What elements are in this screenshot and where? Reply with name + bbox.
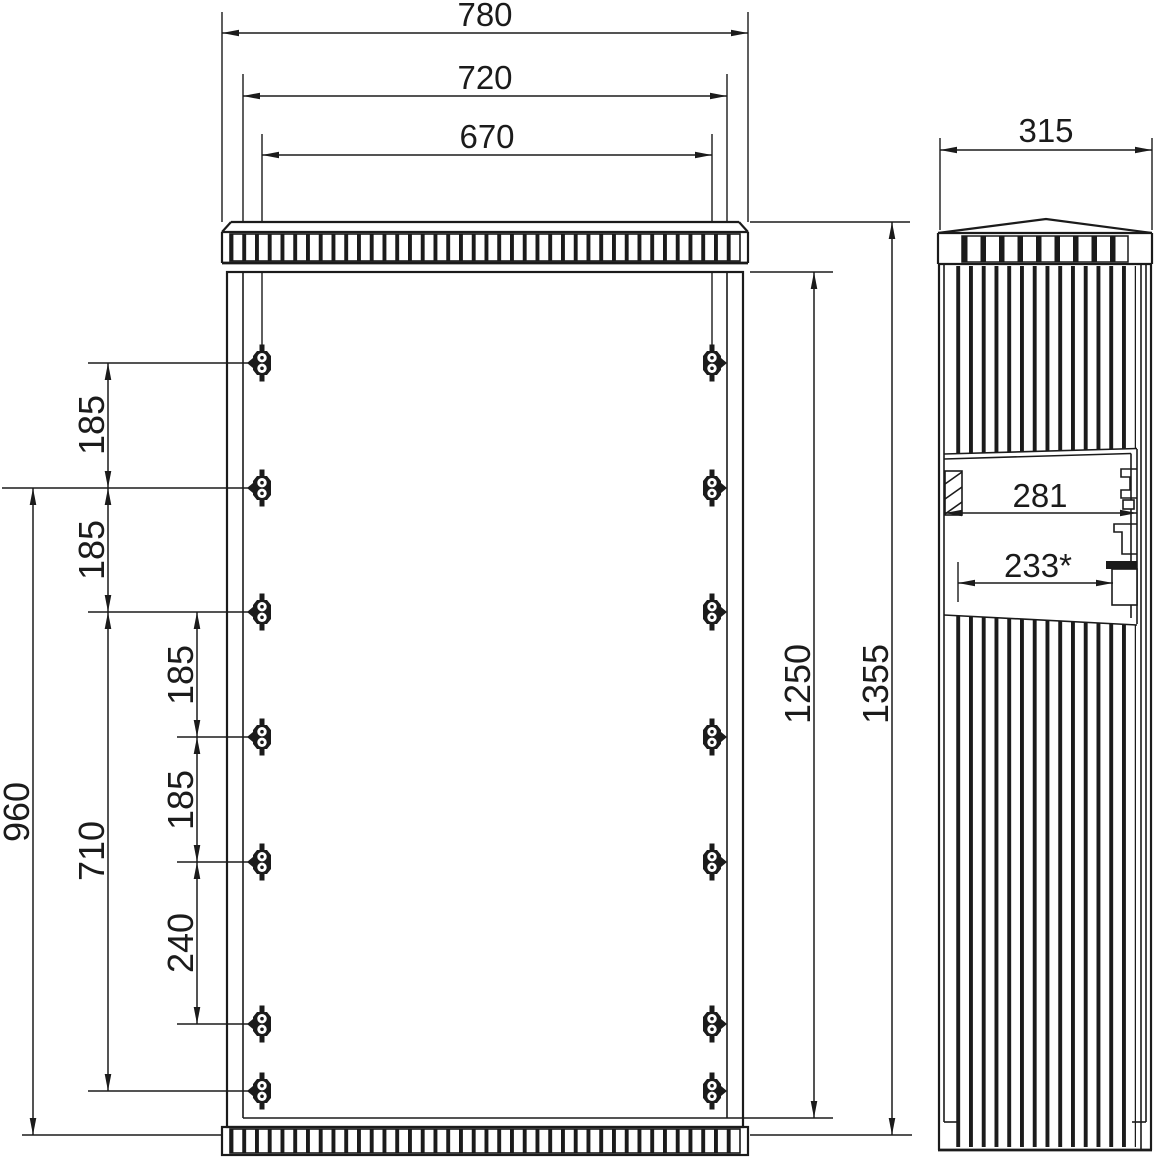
dim-label-1250: 1250 [777, 644, 818, 724]
dim-spacing-240: 240 [160, 862, 201, 1024]
dim-label-1355: 1355 [855, 644, 896, 724]
dim-label-185-2: 185 [71, 520, 112, 580]
dim-inner-281: 281 [945, 477, 1137, 514]
dim-label-281: 281 [1012, 477, 1067, 514]
dim-height-1355: 1355 [855, 222, 896, 1135]
side-roof-cap [938, 219, 1152, 264]
side-rib-panels [944, 266, 1137, 1147]
dim-label-780: 780 [457, 0, 512, 33]
dim-label-233: 233* [1004, 547, 1072, 584]
technical-drawing: 780 720 670 [0, 0, 1155, 1158]
dim-width-780: 780 [222, 0, 748, 33]
dim-depth-315: 315 [940, 112, 1152, 150]
dim-inner-233: 233* [958, 547, 1113, 602]
dim-spacing-185-3: 185 [160, 612, 201, 737]
dim-label-185-3: 185 [160, 645, 201, 705]
side-cap-grille [962, 236, 1128, 262]
dim-label-720: 720 [457, 59, 512, 96]
drawing-canvas: 780 720 670 [0, 0, 1155, 1158]
dim-label-670: 670 [459, 118, 514, 155]
extension-lines-left [2, 363, 251, 1135]
side-view: 315 [938, 112, 1152, 1150]
dim-span-710: 710 [71, 612, 112, 1091]
bottom-gland-grille [222, 1127, 748, 1155]
door-hardware-profiles [1106, 469, 1137, 605]
extension-lines-side-top [940, 138, 1152, 230]
front-view: 780 720 670 [0, 0, 912, 1155]
ventilation-grille-bottom [230, 1129, 740, 1153]
dim-label-185-4: 185 [160, 770, 201, 830]
dim-label-960: 960 [0, 782, 37, 842]
dim-width-720: 720 [243, 59, 727, 96]
ventilation-grille-top [230, 234, 740, 261]
dim-span-960: 960 [0, 488, 37, 1135]
dim-width-670: 670 [262, 118, 712, 155]
dim-spacing-185-1: 185 [71, 363, 112, 488]
dim-spacing-185-4: 185 [160, 737, 201, 862]
dim-height-1250: 1250 [777, 272, 818, 1118]
dim-label-315: 315 [1018, 112, 1073, 149]
dim-label-240: 240 [160, 913, 201, 973]
rib-panel-upper [951, 266, 1136, 454]
cabinet-body [227, 272, 743, 1127]
top-ventilation-hood [222, 222, 748, 263]
mounting-clips-right [703, 345, 727, 1110]
mounting-clips-left [247, 345, 271, 1110]
dim-label-710: 710 [71, 821, 112, 881]
dim-label-185-1: 185 [71, 395, 112, 455]
wall-bracket-hatched [945, 471, 962, 515]
rib-panel-lower [951, 615, 1136, 1147]
extension-lines-top [222, 12, 748, 222]
dim-spacing-185-2: 185 [71, 488, 112, 612]
